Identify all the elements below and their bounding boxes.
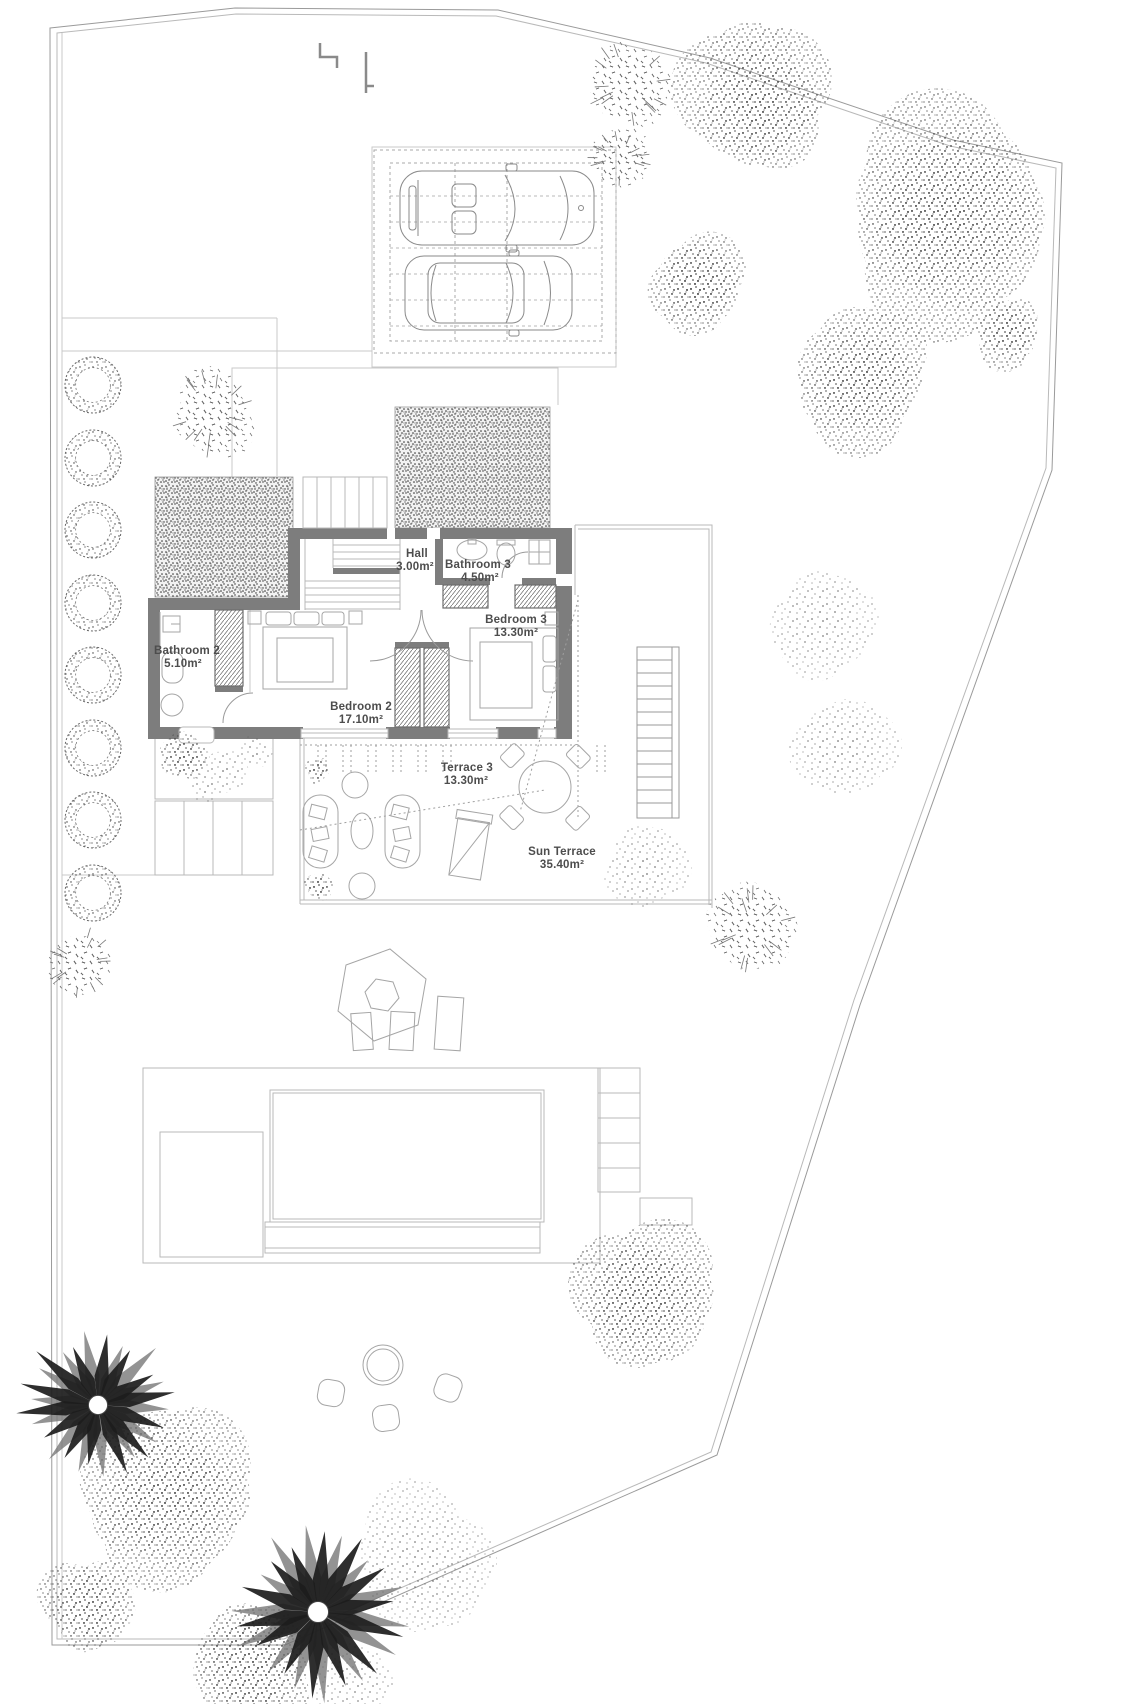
tree-canopy <box>173 366 254 458</box>
bedroom2-furniture <box>248 611 362 689</box>
tree-canopy <box>588 127 651 187</box>
gate-wall-stub <box>320 43 337 68</box>
carport <box>372 147 616 367</box>
room-area-bathroom3: 4.50m² <box>461 572 499 584</box>
exterior-stair-upper <box>303 477 387 528</box>
shrub-wreath <box>65 865 121 921</box>
tree-canopy <box>237 735 273 767</box>
terrace-stairs <box>637 647 679 818</box>
site-plan-drawing: Hall 3.00m² Bathroom 3 4.50m² Bedroom 3 … <box>0 0 1130 1704</box>
tree-canopy <box>590 42 672 127</box>
room-label-sun-terrace: Sun Terrace <box>528 846 596 858</box>
garden-parasol <box>338 949 426 1051</box>
tree-canopy <box>648 232 746 336</box>
pool <box>270 1090 544 1222</box>
terrace-side-table <box>351 813 373 849</box>
garden-lounger <box>434 996 464 1051</box>
room-label-bathroom2: Bathroom 2 <box>154 645 220 657</box>
sun-lounger <box>447 809 493 880</box>
tree-canopy <box>304 873 334 900</box>
room-area-sun-terrace: 35.40m² <box>540 859 584 871</box>
garden-deck <box>155 801 273 875</box>
shrub-wreath <box>65 720 121 776</box>
shrub-wreath <box>65 792 121 848</box>
room-area-bedroom2: 17.10m² <box>339 714 383 726</box>
room-label-bedroom2: Bedroom 2 <box>330 701 392 713</box>
car-hatchback <box>405 250 572 336</box>
room-area-bedroom3: 13.30m² <box>494 627 538 639</box>
floor-plan-page: Hall 3.00m² Bathroom 3 4.50m² Bedroom 3 … <box>0 0 1130 1704</box>
interior-stair <box>305 539 400 610</box>
tree-canopy <box>770 571 880 681</box>
terrace-daybed-2 <box>385 795 420 868</box>
terrace-daybed-1 <box>303 795 338 868</box>
roof-left <box>155 477 293 597</box>
tree-canopy <box>568 1219 713 1368</box>
gate-wall-stub-2 <box>366 52 374 93</box>
tree-canopy <box>797 307 927 458</box>
tree-canopy <box>305 758 330 784</box>
tree-canopy <box>976 298 1037 373</box>
car-convertible <box>400 164 594 252</box>
shrub-wreath <box>65 647 121 703</box>
tree-canopy <box>670 22 832 169</box>
room-label-terrace3: Terrace 3 <box>441 762 493 774</box>
room-area-hall: 3.00m² <box>396 561 434 573</box>
room-label-bathroom3: Bathroom 3 <box>445 559 511 571</box>
tree-canopy <box>706 882 798 972</box>
roof-right <box>395 407 550 528</box>
tree-canopy <box>789 699 902 794</box>
room-area-terrace3: 13.30m² <box>444 775 488 787</box>
room-label-bedroom3: Bedroom 3 <box>485 614 547 626</box>
shrub-wreath <box>65 575 121 631</box>
vegetation-layer <box>16 22 1045 1704</box>
terrace-plant-pots <box>342 772 375 899</box>
pool-area <box>143 1068 692 1263</box>
tree-canopy <box>360 1478 497 1632</box>
room-label-hall: Hall <box>406 548 428 560</box>
pool-steps <box>598 1068 692 1225</box>
tree-canopy <box>603 824 692 908</box>
room-area-bathroom2: 5.10m² <box>164 658 202 670</box>
fire-pit <box>316 1345 465 1433</box>
shrub-wreath <box>65 502 121 558</box>
shrub-wreath <box>65 430 121 486</box>
shrub-wreath <box>65 357 121 413</box>
tree-canopy <box>37 1561 136 1653</box>
